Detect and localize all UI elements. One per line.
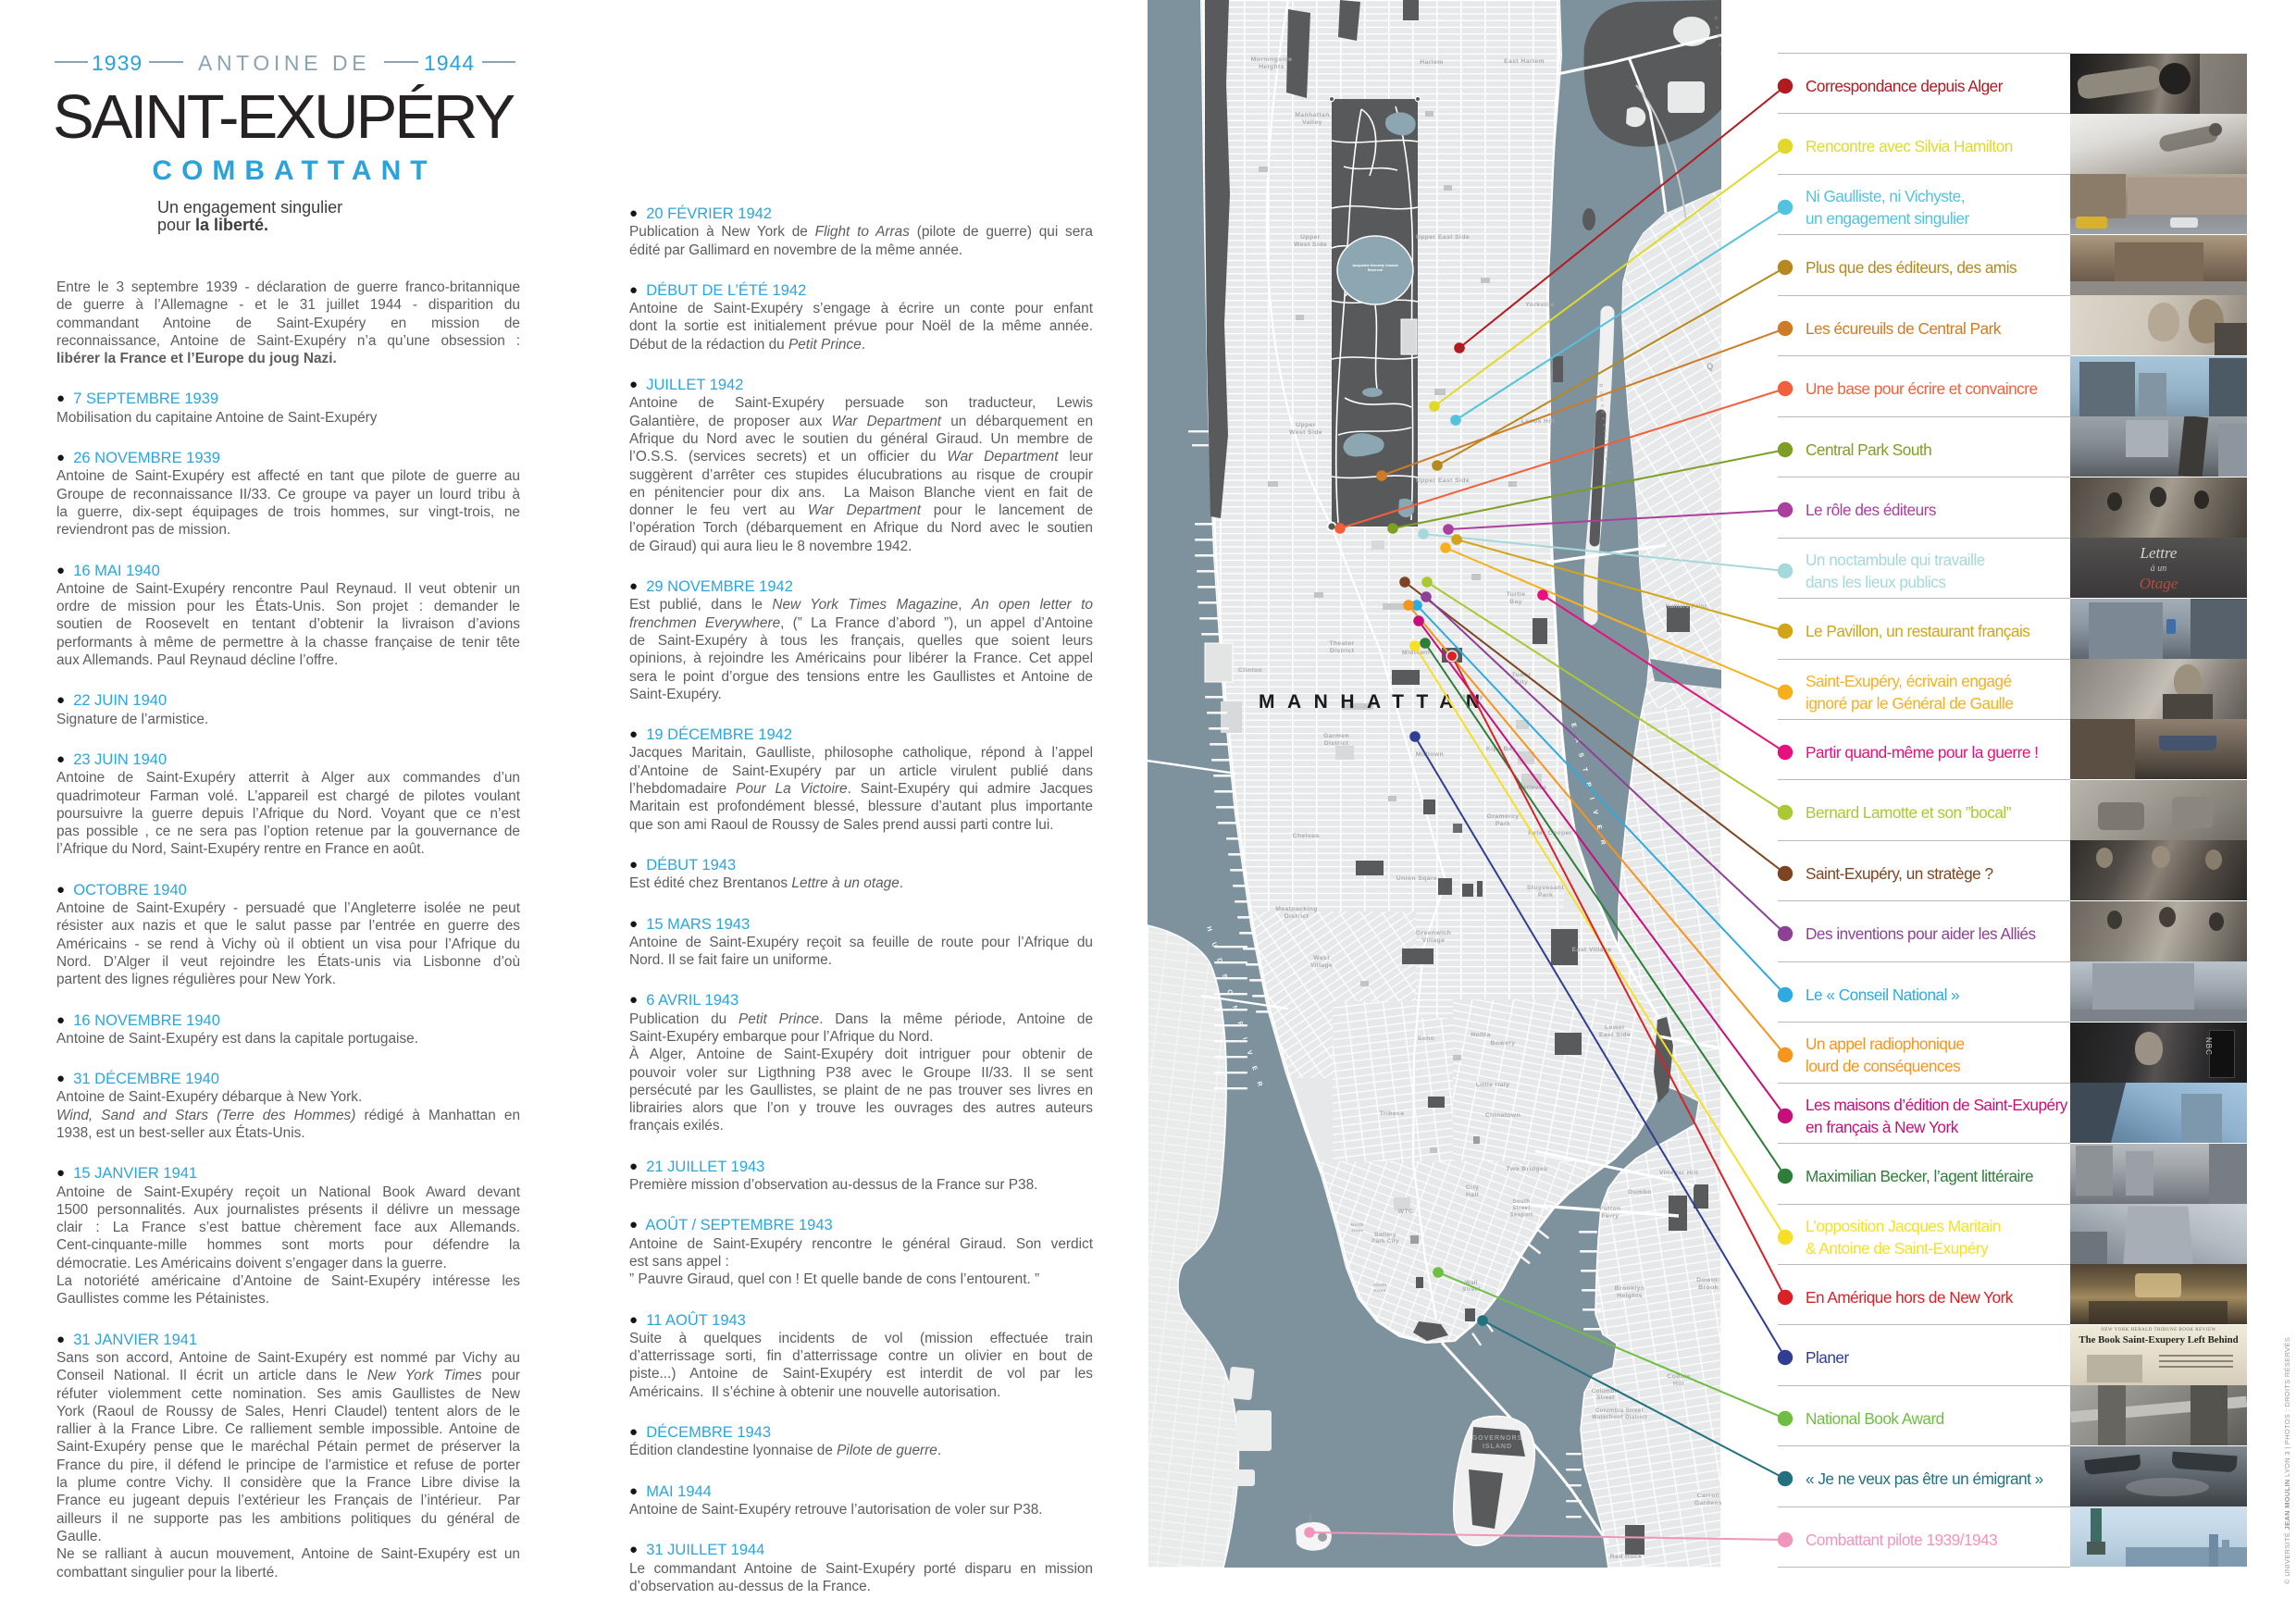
svg-text:Union Sqare: Union Sqare xyxy=(1396,875,1437,882)
svg-text:FultonFerry: FultonFerry xyxy=(1599,1206,1620,1220)
svg-text:Dumbo: Dumbo xyxy=(1628,1189,1651,1196)
svg-text:Harlem: Harlem xyxy=(1420,59,1443,66)
svg-text:Lenox Hill: Lenox Hill xyxy=(1521,418,1555,425)
svg-text:CarrollGardens: CarrollGardens xyxy=(1694,1493,1721,1506)
svg-text:Little Italy: Little Italy xyxy=(1476,1082,1510,1088)
svg-text:Red Hock: Red Hock xyxy=(1610,1554,1643,1560)
svg-text:Jacqueline Kennedy Onassis: Jacqueline Kennedy Onassis xyxy=(1352,264,1398,267)
svg-text:BrooklynHeights: BrooklynHeights xyxy=(1615,1285,1645,1299)
svg-text:WTC: WTC xyxy=(1398,1209,1414,1215)
svg-text:SouthStreetSeaport: SouthStreetSeaport xyxy=(1509,1199,1533,1218)
svg-text:Hunters Point: Hunters Point xyxy=(1666,604,1707,610)
svg-text:East Harlem: East Harlem xyxy=(1504,58,1545,65)
svg-text:Upper East Side: Upper East Side xyxy=(1416,234,1470,241)
svg-text:Clinton: Clinton xyxy=(1238,667,1262,674)
svg-text:GOVERNORS: GOVERNORS xyxy=(1472,1435,1523,1442)
svg-text:Two Bridges: Two Bridges xyxy=(1507,1166,1548,1172)
svg-text:WestVillage: WestVillage xyxy=(1310,955,1334,969)
svg-text:Kips Bay: Kips Bay xyxy=(1486,746,1516,752)
svg-text:NorthCove: NorthCove xyxy=(1351,1222,1364,1233)
svg-text:Upper East Side: Upper East Side xyxy=(1416,477,1470,484)
svg-text:Midtown: Midtown xyxy=(1402,650,1430,656)
svg-text:TheaterDistrict: TheaterDistrict xyxy=(1329,640,1354,654)
svg-text:Columbia StreetWaterfront Dist: Columbia StreetWaterfront District xyxy=(1592,1408,1647,1420)
svg-text:East Village: East Village xyxy=(1572,947,1612,953)
svg-text:Chelsea: Chelsea xyxy=(1293,833,1320,839)
svg-text:Bowery: Bowery xyxy=(1491,1040,1516,1047)
svg-text:ISLAND: ISLAND xyxy=(1483,1444,1512,1450)
svg-text:Yorkville: Yorkville xyxy=(1525,302,1554,308)
svg-text:Reservoir: Reservoir xyxy=(1368,268,1384,272)
svg-text:MANHATTAN: MANHATTAN xyxy=(1259,691,1493,713)
svg-text:Vinegar Hill: Vinegar Hill xyxy=(1659,1170,1698,1176)
svg-text:SouthCove: SouthCove xyxy=(1372,1283,1386,1293)
svg-text:Bellevue: Bellevue xyxy=(1518,785,1546,791)
svg-text:CityHall: CityHall xyxy=(1466,1184,1479,1198)
svg-text:GarmenDistrict: GarmenDistrict xyxy=(1323,733,1349,747)
svg-text:BatteryPark City: BatteryPark City xyxy=(1371,1233,1399,1245)
svg-text:Midtown: Midtown xyxy=(1416,751,1444,758)
svg-text:Tribeca: Tribeca xyxy=(1380,1110,1405,1117)
svg-text:Downt-Brook: Downt-Brook xyxy=(1696,1277,1719,1291)
svg-text:Chinatown: Chinatown xyxy=(1485,1112,1520,1119)
svg-text:WallStreet: WallStreet xyxy=(1462,1281,1480,1293)
svg-text:Soho: Soho xyxy=(1418,1035,1435,1042)
svg-text:Peter Cooper: Peter Cooper xyxy=(1528,830,1571,837)
svg-text:Q: Q xyxy=(1706,362,1713,371)
svg-text:Nolita: Nolita xyxy=(1471,1032,1490,1038)
